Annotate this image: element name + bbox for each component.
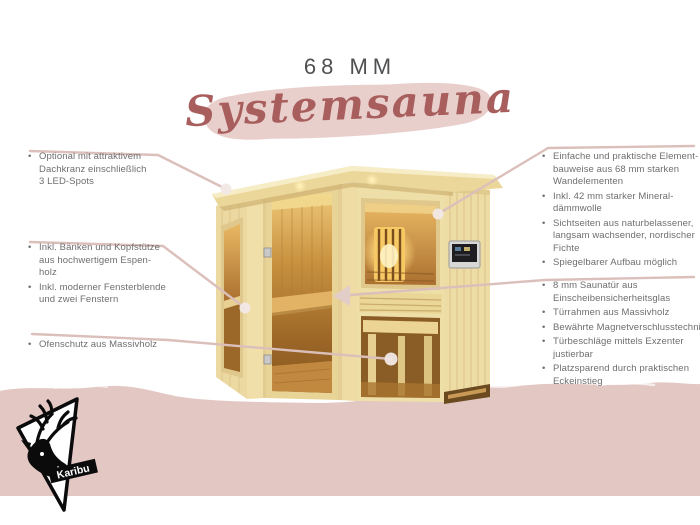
callout-dot: [221, 184, 232, 195]
note-item: Inkl. 42 mm starker Mineral- dämmwolle: [541, 191, 699, 216]
note-item: Platzsparend durch praktischen Eckeinsti…: [541, 363, 699, 388]
sauna-door: [264, 184, 338, 400]
note-group-right-2: 8 mm Saunatür aus Einscheibensicherheits…: [541, 280, 699, 390]
left-window-lower: [224, 304, 240, 372]
note-group-left-1: Optional mit attraktivem Dachkranz einsc…: [27, 151, 187, 191]
control-panel: [449, 241, 480, 268]
note-item: Spiegelbarer Aufbau möglich: [541, 257, 699, 270]
left-window-upper: [224, 224, 240, 301]
note-item: Bewährte Magnetverschlusstechnik: [541, 322, 699, 335]
sauna-lamp: [374, 227, 405, 282]
door-hinge: [264, 355, 271, 364]
door-hinge: [264, 248, 271, 257]
note-item: Türbeschläge mittels Exzenter justierbar: [541, 336, 699, 361]
callout-dot: [240, 303, 251, 314]
note-item: Inkl. moderner Fensterblende und zwei Fe…: [27, 282, 187, 307]
note-item: Ofenschutz aus Massivholz: [27, 339, 187, 352]
product-sheet: { "header": { "size_label": "68 MM", "ti…: [0, 0, 700, 525]
note-item: Inkl. Bänken und Kopfstütze aus hochwert…: [27, 242, 187, 280]
note-group-right-1: Einfache und praktische Element- bauweis…: [541, 151, 699, 272]
sauna-left-wall: [216, 193, 247, 399]
callout-dot: [385, 353, 398, 366]
note-item: 8 mm Saunatür aus Einscheibensicherheits…: [541, 280, 699, 305]
note-group-left-3: Ofenschutz aus Massivholz: [27, 339, 187, 354]
note-item: Optional mit attraktivem Dachkranz einsc…: [27, 151, 187, 189]
sauna-right-wall: [444, 186, 490, 404]
note-item: Türrahmen aus Massivholz: [541, 307, 699, 320]
callout-dot: [433, 209, 444, 220]
note-group-left-2: Inkl. Bänken und Kopfstütze aus hochwert…: [27, 242, 187, 309]
note-item: Einfache und praktische Element- bauweis…: [541, 151, 699, 189]
note-item: Sichtseiten aus naturbelassener, langsam…: [541, 218, 699, 256]
